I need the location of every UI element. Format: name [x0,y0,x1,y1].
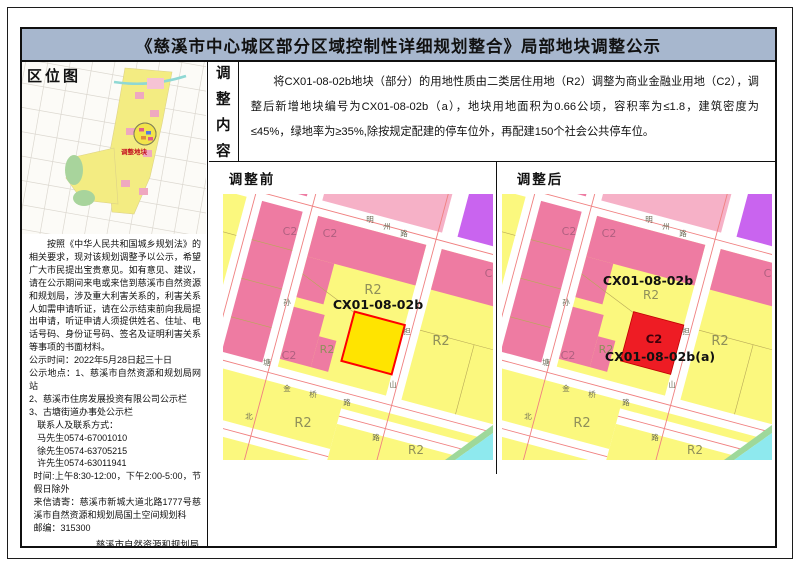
svg-text:R2: R2 [432,334,449,349]
svg-text:明: 明 [366,215,374,224]
svg-text:金: 金 [562,383,570,393]
notice-signatures: 慈溪市自然资源和规划局慈溪市住房发展投资有限公司慈溪市人民政府古塘街道办事处二〇… [29,538,201,546]
page-title: 《慈溪市中心城区部分区域控制性详细规划整合》局部地块调整公示 [22,29,775,62]
notice-line: 徐先生0574-63705215 [29,445,201,458]
plan-map-before: C2C2C2C2R2R2R2R2R2CX01-08-02b明州路金桥路孙塘北担山… [223,194,493,460]
signature-line: 慈溪市自然资源和规划局 [29,538,199,546]
notice-intro: 按照《中华人民共和国城乡规划法》的相关要求，现对该规划调整予以公示，希望广大市民… [29,238,201,354]
svg-text:CX01-08-02b: CX01-08-02b [333,297,423,312]
svg-text:路: 路 [343,397,351,407]
notice-line: 许先生0574-63011941 [29,457,201,470]
notice-line: 马先生0574-67001010 [29,432,201,445]
svg-text:山: 山 [668,379,676,389]
svg-text:R2: R2 [319,343,334,356]
svg-text:北: 北 [245,412,253,421]
adjustment-heading: 调整内容 [209,62,239,161]
location-map-graphic [22,62,206,234]
panel-after: 调整后 C2C2C2C2R2R2R2R2CX01-08-02bR2C2CX01-… [496,162,775,474]
notice-line: 2、慈溪市住房发展投资有限公司公示栏 [29,393,201,406]
adjustment-heading-char: 调 [216,62,231,83]
svg-text:C2: C2 [601,227,616,240]
svg-text:C2: C2 [561,225,576,238]
svg-text:担: 担 [403,326,411,336]
svg-text:孙: 孙 [562,297,570,307]
svg-text:C2: C2 [281,349,296,362]
svg-text:CX01-08-02b(a): CX01-08-02b(a) [605,349,715,364]
location-map: 区位图 调整地块 [22,62,207,234]
svg-text:明: 明 [645,215,653,224]
notice-line: 邮编：315300 [29,522,201,535]
svg-text:R2: R2 [408,443,424,457]
svg-text:R2: R2 [294,416,311,431]
svg-text:路: 路 [679,228,687,238]
svg-text:C2: C2 [560,349,575,362]
notice-line: 来信请寄：慈溪市新城大道北路1777号慈溪市自然资源和规划局国土空间规划科 [29,496,201,522]
document-frame: 《慈溪市中心城区部分区域控制性详细规划整合》局部地块调整公示 区位图 调整地块 … [20,27,777,548]
adjustment-text: 将CX01-08-02b地块（部分）的用地性质由二类居住用地（R2）调整为商业金… [239,62,775,161]
svg-text:桥: 桥 [309,389,317,399]
svg-text:R2: R2 [364,283,381,298]
notice-text-block: 按照《中华人民共和国城乡规划法》的相关要求，现对该规划调整予以公示，希望广大市民… [22,236,207,546]
after-label: 调整后 [517,168,564,188]
svg-text:州: 州 [383,222,391,231]
svg-text:孙: 孙 [283,297,291,307]
svg-text:C2: C2 [646,332,662,346]
notice-line: 公示时间：2022年5月28日起三十日 [29,354,201,367]
svg-text:北: 北 [524,412,532,421]
notice-line: 公示地点：1、慈溪市自然资源和规划局网站 [29,367,201,393]
svg-text:C2: C2 [282,225,297,238]
before-label: 调整前 [229,168,276,188]
notice-line: 联系人及联系方式： [29,419,201,432]
svg-text:R2: R2 [711,334,728,349]
svg-text:C2: C2 [763,267,771,280]
notice-line: 3、古塘街道办事处公示栏 [29,406,201,419]
svg-text:州: 州 [662,222,670,231]
svg-text:担: 担 [682,326,690,336]
svg-text:路: 路 [372,432,380,442]
svg-text:山: 山 [389,379,397,389]
svg-text:塘: 塘 [263,357,271,367]
svg-text:路: 路 [622,397,630,407]
panel-before: 调整前 C2C2C2C2R2R2R2R2R2CX01-08-02b明州路金桥路孙… [209,162,496,474]
svg-text:C2: C2 [484,267,492,280]
notice-line: 时间:上午8:30-12:00，下午2:00-5:00，节假日除外 [29,470,201,496]
adjustment-heading-char: 内 [216,114,231,135]
maps-row: 调整前 C2C2C2C2R2R2R2R2R2CX01-08-02b明州路金桥路孙… [209,162,775,474]
adjustment-heading-char: 整 [216,88,231,109]
adjustment-heading-char: 容 [216,140,231,161]
svg-text:塘: 塘 [542,357,550,367]
svg-text:R2: R2 [687,443,703,457]
notice-lines: 公示时间：2022年5月28日起三十日公示地点：1、慈溪市自然资源和规划局网站2… [29,354,201,535]
right-area: 调整内容 将CX01-08-02b地块（部分）的用地性质由二类居住用地（R2）调… [209,62,775,546]
svg-text:R2: R2 [643,288,659,302]
svg-text:R2: R2 [573,416,590,431]
svg-text:金: 金 [283,383,291,393]
svg-text:路: 路 [400,228,408,238]
svg-text:桥: 桥 [588,389,596,399]
left-column: 区位图 调整地块 按照《中华人民共和国城乡规划法》的相关要求，现对该规划调整予以… [22,62,208,546]
svg-text:路: 路 [651,432,659,442]
svg-text:C2: C2 [322,227,337,240]
adjustment-row: 调整内容 将CX01-08-02b地块（部分）的用地性质由二类居住用地（R2）调… [209,62,775,162]
plan-map-after: C2C2C2C2R2R2R2R2CX01-08-02bR2C2CX01-08-0… [502,194,772,460]
location-map-title: 区位图 [27,65,81,86]
public-notice-page: 《慈溪市中心城区部分区域控制性详细规划整合》局部地块调整公示 区位图 调整地块 … [0,0,800,566]
adjust-parcel-marker-label: 调整地块 [121,146,147,156]
svg-text:CX01-08-02b: CX01-08-02b [603,273,693,288]
